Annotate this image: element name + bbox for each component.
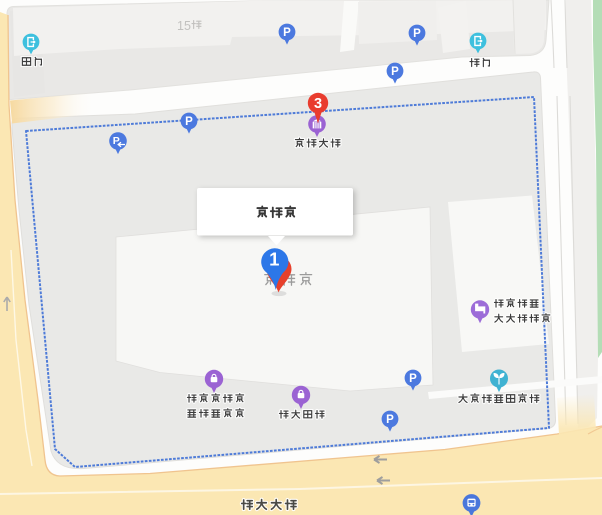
svg-text:P: P xyxy=(386,414,394,426)
svg-text:P: P xyxy=(409,373,417,385)
svg-text:1: 1 xyxy=(269,249,279,270)
svg-text:P: P xyxy=(185,116,193,128)
svg-text:P: P xyxy=(391,66,399,78)
svg-text:15: 15 xyxy=(177,19,191,33)
svg-text:P: P xyxy=(413,28,421,40)
svg-text:P: P xyxy=(283,27,291,39)
svg-text:3: 3 xyxy=(314,96,322,112)
